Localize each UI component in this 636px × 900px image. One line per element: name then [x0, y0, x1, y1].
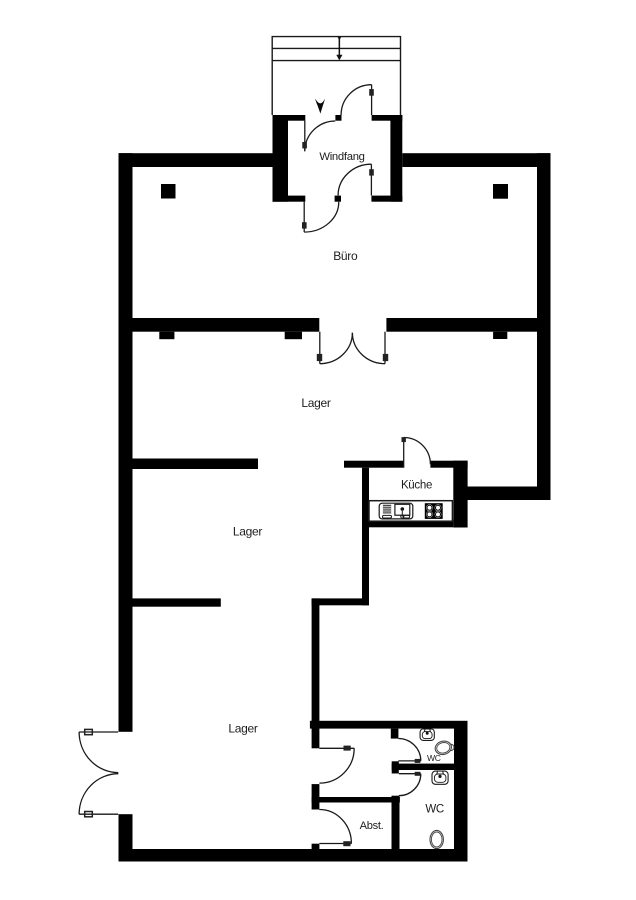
svg-text:Büro: Büro	[333, 249, 358, 263]
svg-text:Küche: Küche	[401, 479, 432, 491]
svg-text:WC: WC	[425, 803, 444, 815]
svg-text:Lager: Lager	[228, 721, 257, 735]
svg-text:WC: WC	[427, 753, 441, 763]
svg-text:Lager: Lager	[233, 525, 262, 539]
svg-text:Windfang: Windfang	[319, 151, 364, 163]
svg-text:Abst.: Abst.	[360, 820, 384, 832]
svg-text:Lager: Lager	[301, 396, 330, 410]
